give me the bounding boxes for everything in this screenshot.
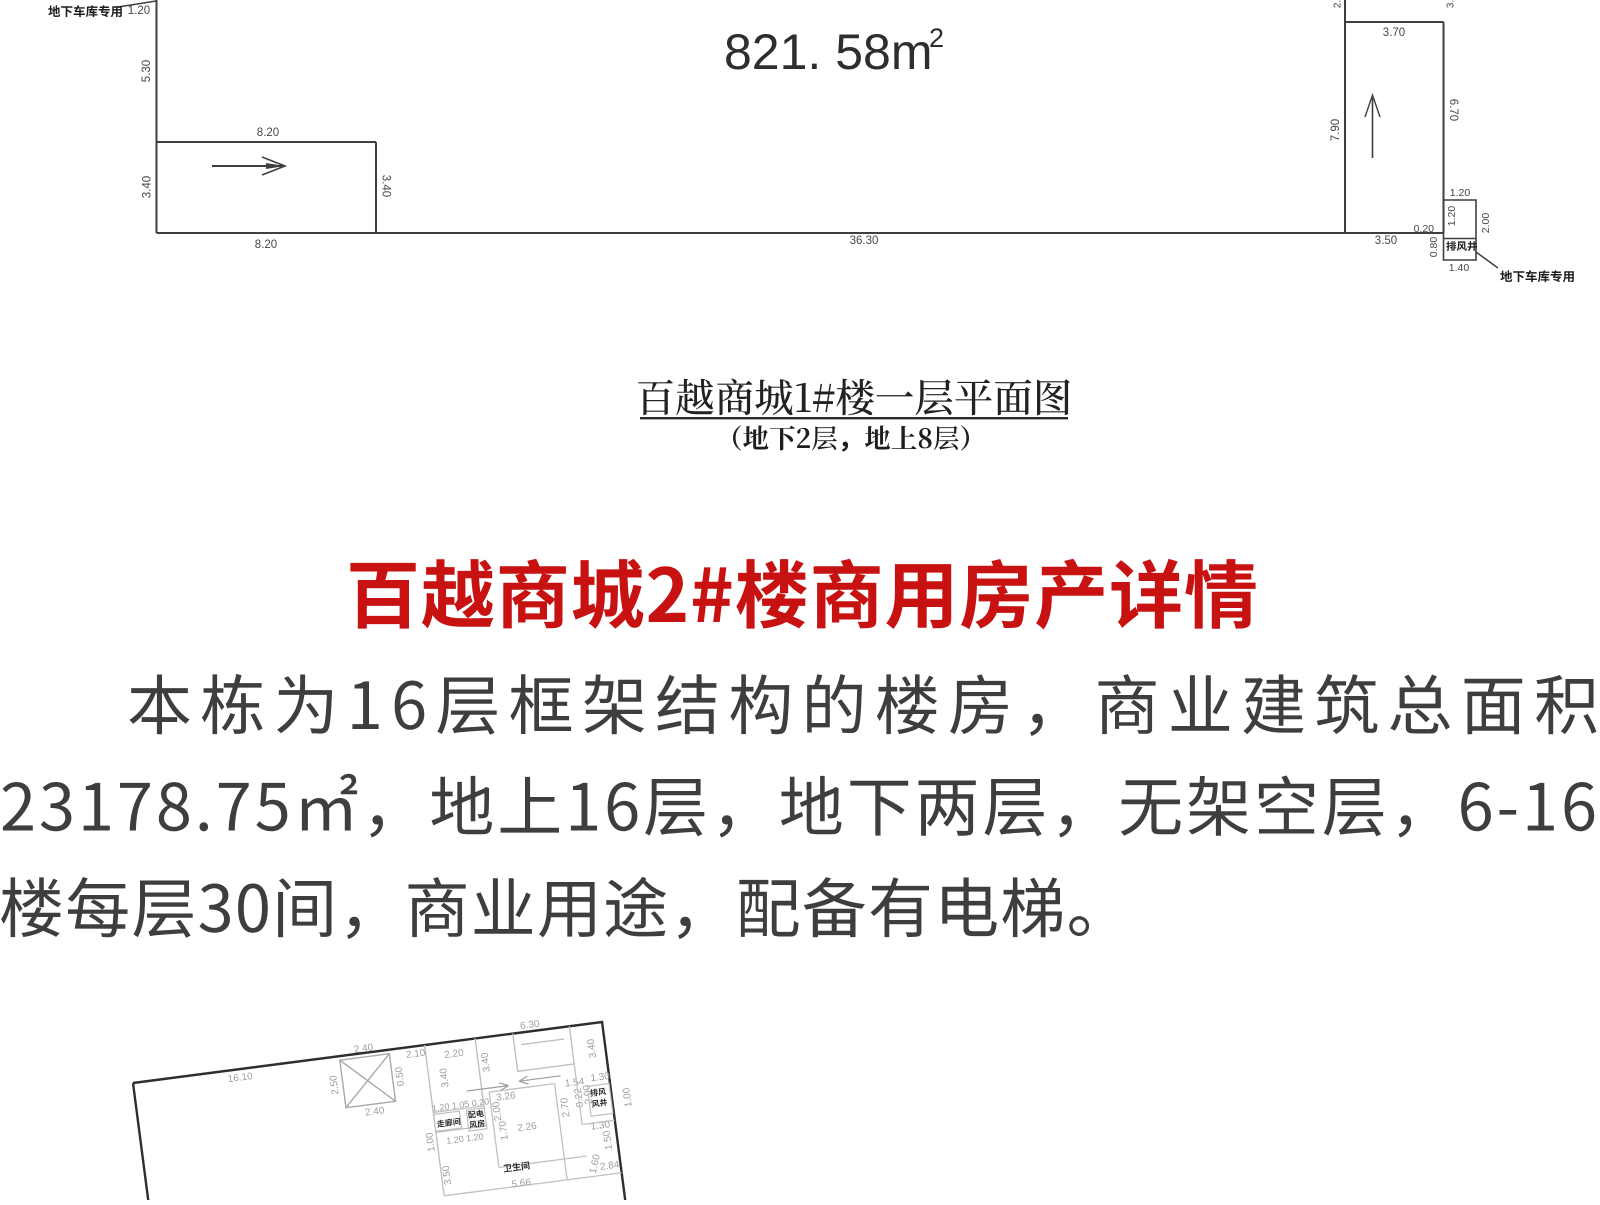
svg-text:0.20: 0.20 (1414, 223, 1435, 235)
svg-text:3.: 3. (1446, 0, 1457, 8)
svg-text:0.50: 0.50 (394, 1066, 407, 1087)
svg-text:2.00: 2.00 (491, 1100, 504, 1121)
svg-text:1.50: 1.50 (602, 1129, 615, 1150)
svg-text:3.50: 3.50 (1375, 235, 1397, 247)
svg-text:3.40: 3.40 (438, 1067, 451, 1088)
svg-text:2.: 2. (1333, 0, 1344, 8)
svg-text:2.50: 2.50 (328, 1074, 341, 1095)
svg-text:3.40: 3.40 (480, 1051, 493, 1072)
svg-text:1.20: 1.20 (128, 5, 150, 17)
svg-text:2.40: 2.40 (353, 1042, 374, 1055)
svg-text:2.40: 2.40 (364, 1105, 385, 1118)
svg-text:1.20 1.20: 1.20 1.20 (446, 1131, 485, 1146)
svg-text:2.10: 2.10 (405, 1048, 426, 1061)
svg-text:36.30: 36.30 (850, 235, 879, 247)
svg-text:5.30: 5.30 (141, 60, 153, 82)
svg-text:1.20: 1.20 (1450, 187, 1471, 199)
svg-text:5.66: 5.66 (511, 1177, 532, 1190)
svg-text:2: 2 (929, 23, 944, 53)
svg-text:6.70: 6.70 (1447, 99, 1459, 121)
svg-text:8.20: 8.20 (257, 127, 279, 139)
svg-text:3.40: 3.40 (380, 175, 392, 197)
svg-text:3.40: 3.40 (586, 1038, 599, 1059)
svg-text:2.84: 2.84 (599, 1159, 620, 1172)
svg-text:1.00: 1.00 (621, 1086, 634, 1107)
svg-text:1.30: 1.30 (590, 1071, 611, 1084)
svg-text:1.70: 1.70 (497, 1120, 510, 1141)
svg-text:2.20: 2.20 (444, 1048, 465, 1061)
svg-text:2.26: 2.26 (517, 1121, 538, 1134)
svg-text:2.70: 2.70 (559, 1097, 572, 1118)
svg-text:1.20: 1.20 (1446, 206, 1458, 227)
svg-text:16.10: 16.10 (227, 1071, 254, 1085)
svg-text:3.40: 3.40 (142, 176, 154, 198)
svg-text:2.00: 2.00 (1480, 213, 1492, 234)
svg-text:821. 58m: 821. 58m (724, 24, 932, 80)
svg-text:1.40: 1.40 (1449, 262, 1470, 274)
svg-text:8.20: 8.20 (255, 239, 277, 251)
svg-text:3.50: 3.50 (441, 1164, 454, 1185)
svg-text:3.70: 3.70 (1383, 27, 1405, 39)
svg-text:0.80: 0.80 (1428, 237, 1440, 258)
svg-text:7.90: 7.90 (1330, 119, 1342, 141)
